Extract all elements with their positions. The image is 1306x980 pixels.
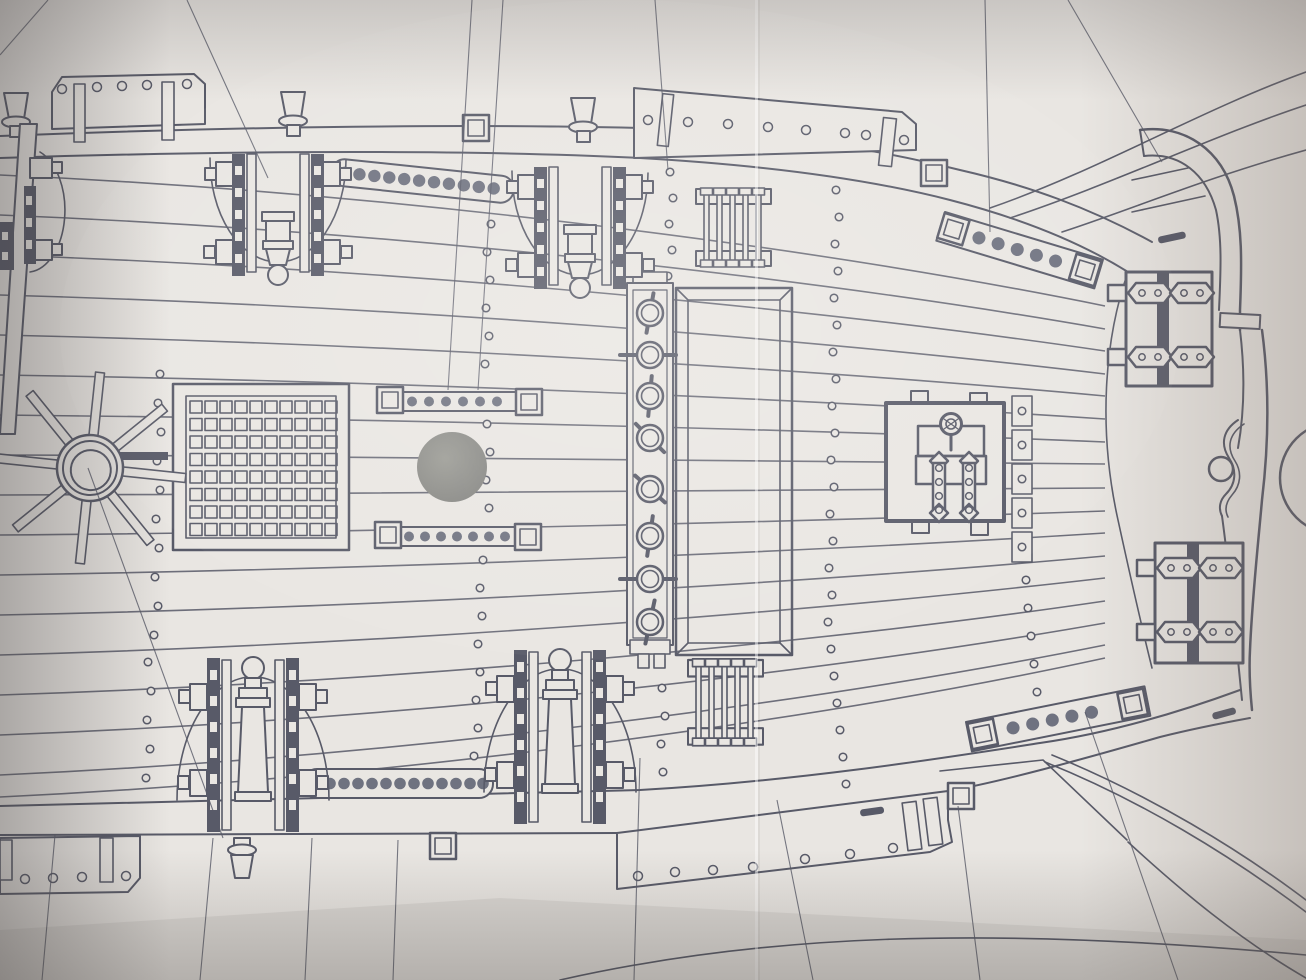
companion-ladder-bottom <box>688 659 763 746</box>
deck-ring-square <box>948 783 974 809</box>
deck-plan-drawing <box>0 0 1306 980</box>
pin-rail-bottom-left <box>303 769 493 798</box>
photographed-plan-sheet <box>0 0 1306 980</box>
